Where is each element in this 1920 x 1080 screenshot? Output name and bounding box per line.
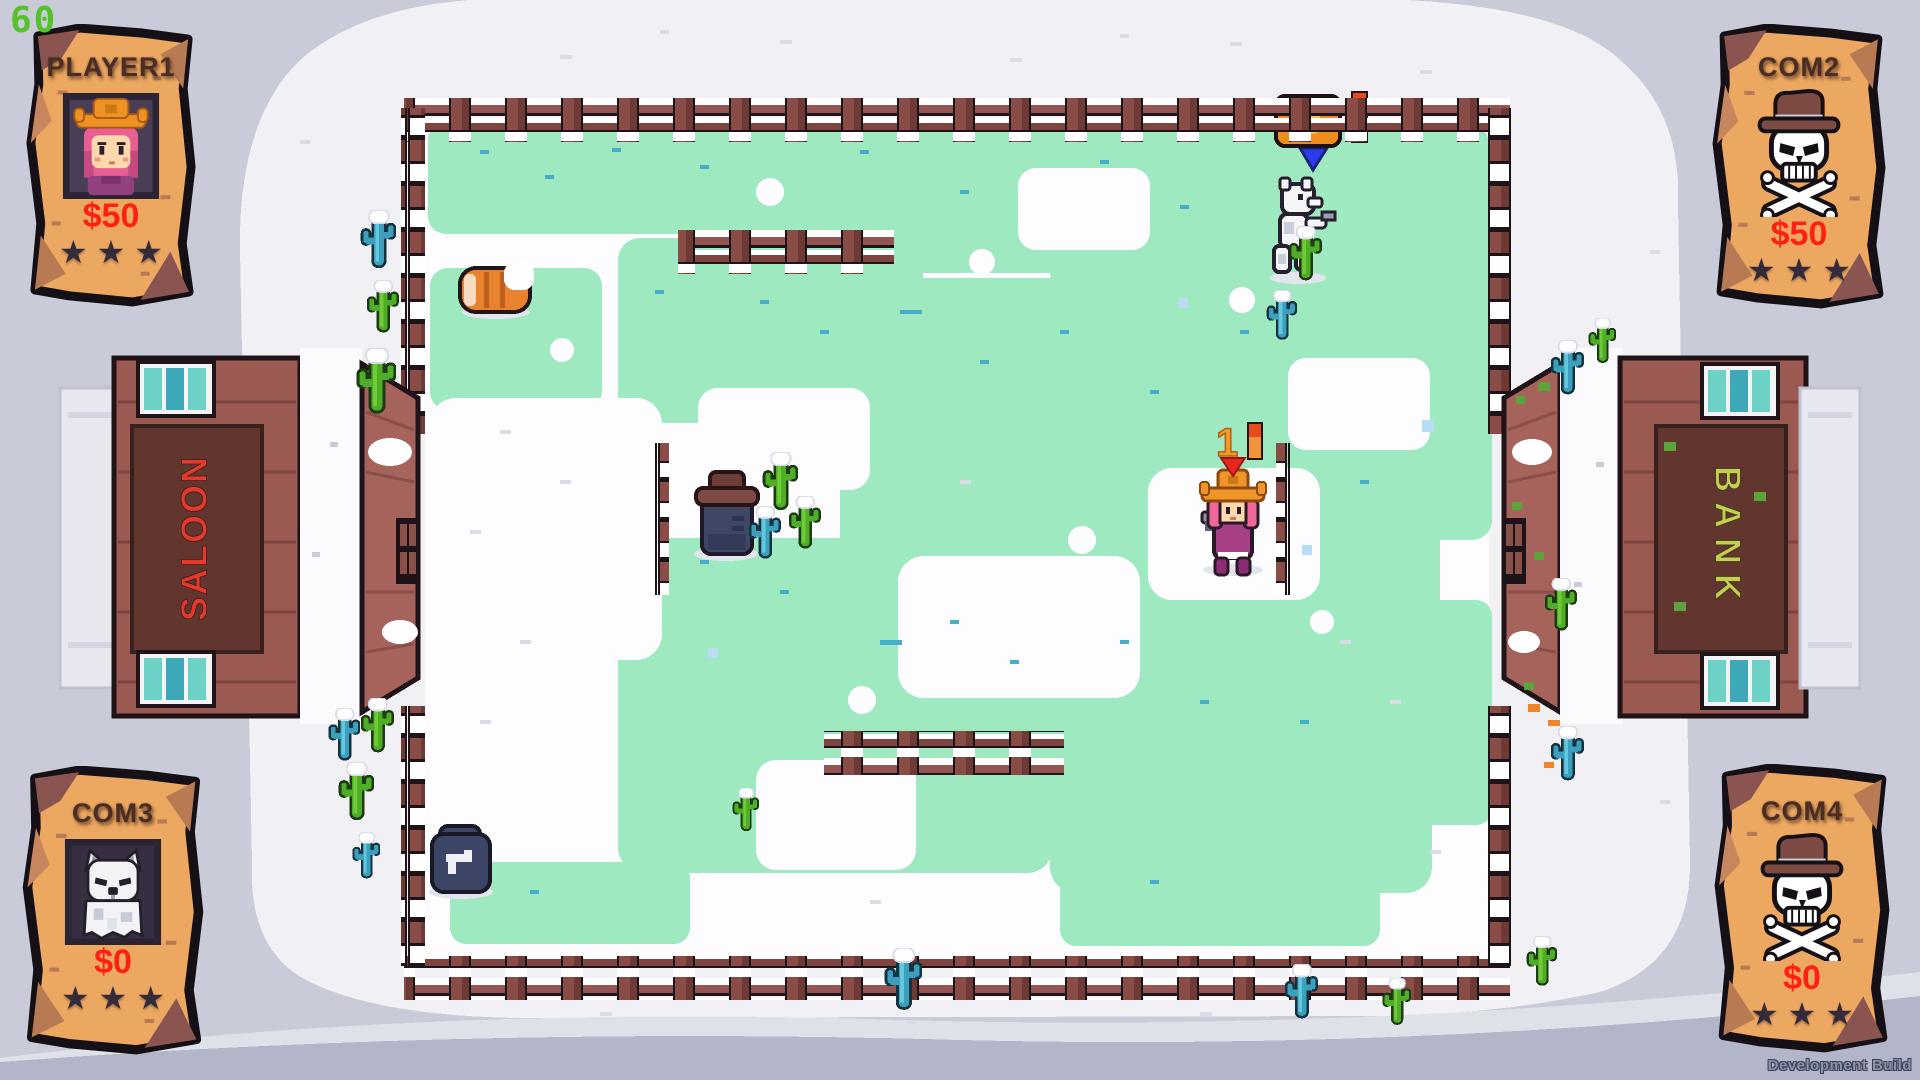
poster-title-com3: COM3 <box>72 798 154 829</box>
arena-fence-left-lower <box>401 706 425 966</box>
arena-fence-top <box>404 98 1510 142</box>
wolf-portrait <box>63 839 163 945</box>
inner-post-line-right <box>1276 443 1290 595</box>
bank-sign: BANK <box>1707 466 1748 610</box>
wanted-poster-com3: COM3 $0 ★★★ <box>18 766 208 1058</box>
poster-title-com2: COM2 <box>1758 52 1840 83</box>
bounty-amount-com4: $0 <box>1783 961 1821 997</box>
star-rating-com4: ★★★ <box>1741 997 1863 1032</box>
wanted-poster-player1: PLAYER1 $50 ★★★ <box>22 24 200 310</box>
orange-barrel <box>460 262 534 319</box>
saloon-building <box>60 348 420 724</box>
bank-building <box>1502 348 1860 724</box>
poster-title-player1: PLAYER1 <box>46 52 175 83</box>
arena-fence-left-upper <box>401 108 425 434</box>
arena-fence-right-lower <box>1488 706 1512 966</box>
bounty-amount-player1: $50 <box>83 199 140 235</box>
star-rating-com3: ★★★ <box>52 981 174 1016</box>
star-rating-com2: ★★★ <box>1738 253 1860 288</box>
bounty-amount-com2: $50 <box>1771 217 1828 253</box>
skull-crossbones-icon <box>1749 87 1849 217</box>
inner-post-line-left <box>655 443 669 595</box>
arena-fence-right-upper <box>1488 108 1512 434</box>
poster-title-com4: COM4 <box>1761 796 1843 827</box>
inner-fence-top <box>678 230 894 274</box>
fps-counter: 60 <box>10 0 57 41</box>
pickup-counter: 1 <box>1216 421 1238 465</box>
cowgirl-portrait <box>61 93 161 199</box>
wanted-poster-com2: COM2 $50 ★★★ <box>1708 24 1890 312</box>
gun-crate <box>429 826 493 899</box>
game-screen[interactable]: 1 SALOON <box>0 0 1920 1080</box>
inner-fence-bottom <box>824 731 1064 775</box>
saloon-sign: SALOON <box>174 455 215 621</box>
skull-crossbones-icon <box>1752 831 1852 961</box>
arena-scene: 1 SALOON <box>0 0 1920 1080</box>
bounty-amount-com3: $0 <box>94 945 132 981</box>
wanted-poster-com4: COM4 $0 ★★★ <box>1710 764 1894 1056</box>
arena-fence-bottom <box>404 956 1510 1000</box>
development-build-label: Development Build <box>1768 1057 1912 1074</box>
player-dynamite-meter-icon <box>1247 422 1263 460</box>
star-rating-player1: ★★★ <box>50 235 172 270</box>
